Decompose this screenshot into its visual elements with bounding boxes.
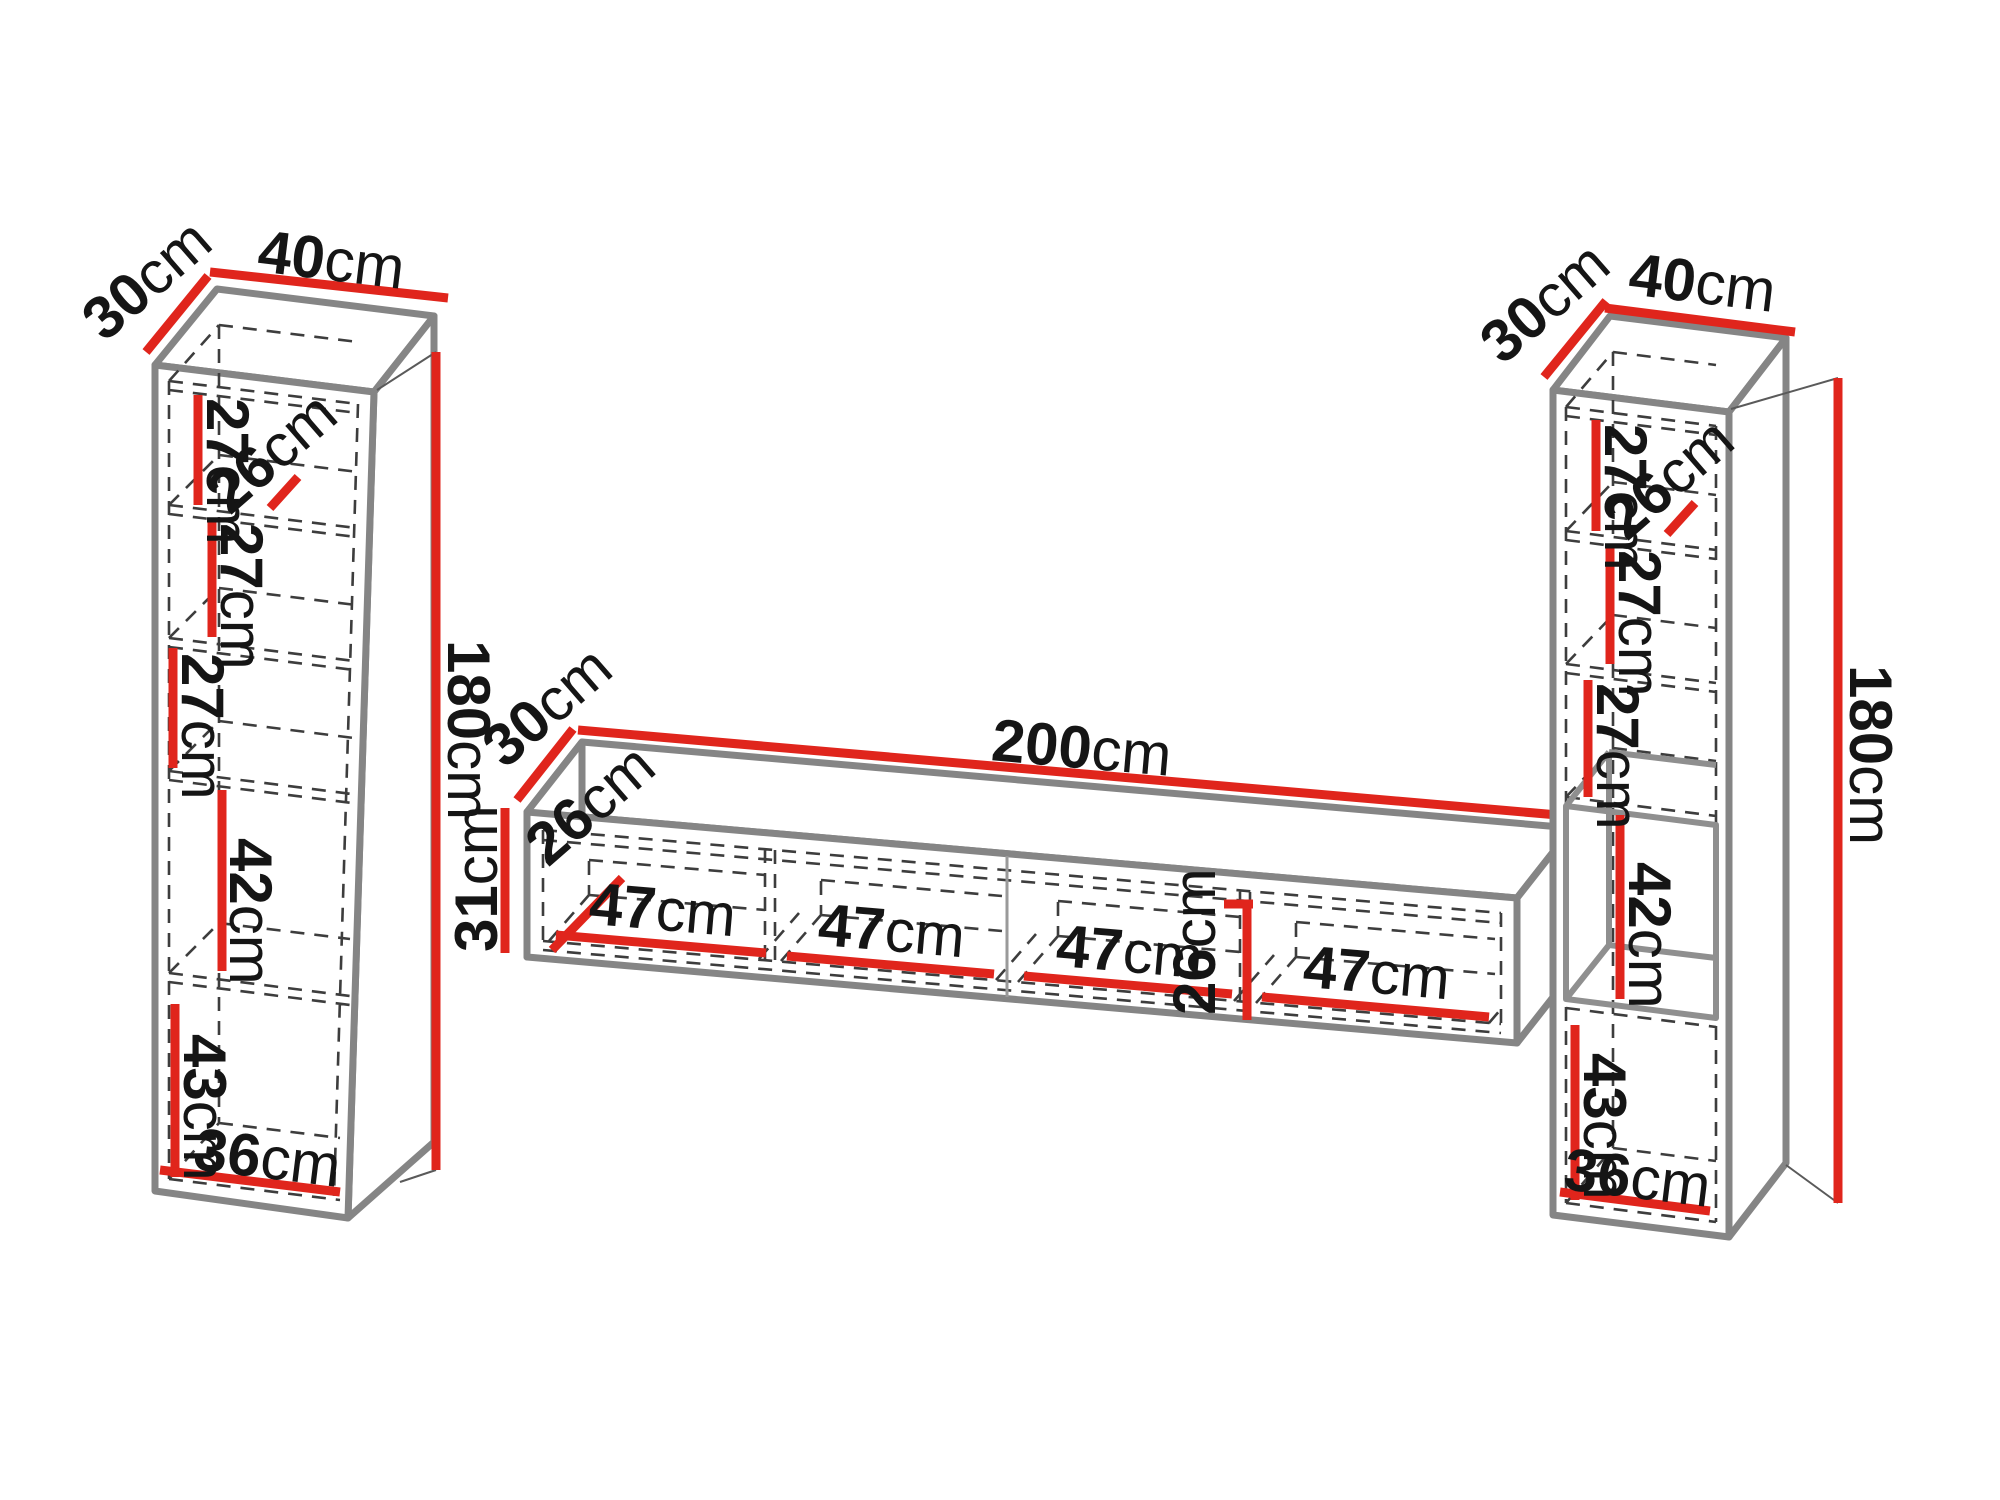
dim-label-left-shelf2: 27cm <box>208 523 275 670</box>
right-cabinet-side-face <box>1729 338 1786 1237</box>
left-cabinet: 30cm 40cm 180cm 27cm 26cm 27cm 27cm 42cm… <box>69 206 502 1218</box>
furniture-dimension-diagram: 30cm 40cm 180cm 27cm 26cm 27cm 27cm 42cm… <box>0 0 2000 1500</box>
dim-label-left-width: 40cm <box>255 217 409 301</box>
diagram-canvas: 30cm 40cm 180cm 27cm 26cm 27cm 27cm 42cm… <box>0 0 2000 1500</box>
right-cabinet: 30cm 40cm 180cm 27cm 26cm 27cm 27cm 42cm… <box>1467 229 1904 1237</box>
dim-label-tv-height: 31cm <box>443 805 510 952</box>
dim-label-right-niche: 42cm <box>1616 862 1683 1009</box>
dim-label-left-shelf3: 27cm <box>169 653 236 800</box>
dim-label-left-niche: 42cm <box>217 838 284 985</box>
dim-label-tv-comp4: 47cm <box>1301 933 1453 1013</box>
dim-label-right-height: 180cm <box>1837 665 1904 845</box>
dim-label-right-shelf2: 27cm <box>1606 550 1673 697</box>
dim-label-right-shelf3: 27cm <box>1584 683 1651 830</box>
tv-stand: 30cm 200cm 31cm 26cm 26cm 47cm 47cm 47cm… <box>443 633 1581 1043</box>
dim-label-tv-comp3: 47cm <box>1054 912 1206 992</box>
dim-label-tv-comp2: 47cm <box>816 891 968 971</box>
dim-label-tv-comp1: 47cm <box>587 870 739 950</box>
